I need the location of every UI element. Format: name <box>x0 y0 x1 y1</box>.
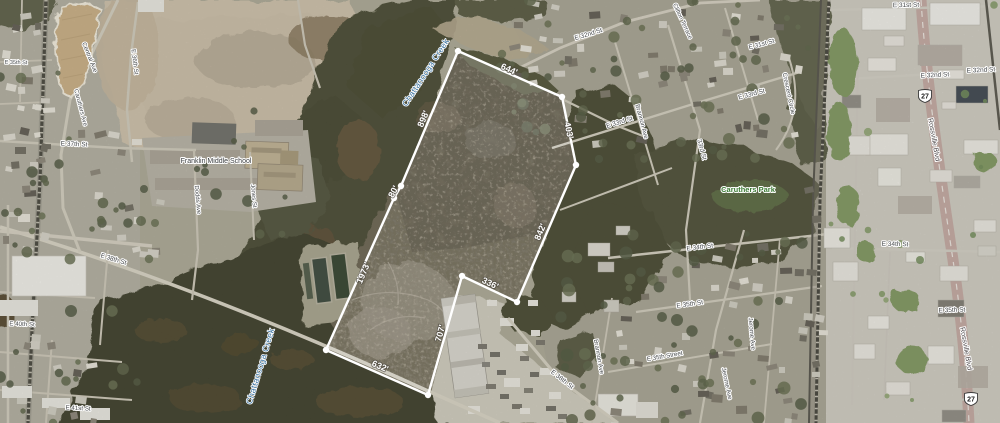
svg-text:E 31st St: E 31st St <box>893 2 920 9</box>
svg-text:E 41st St: E 41st St <box>65 404 91 412</box>
svg-text:Franklin Middle School: Franklin Middle School <box>181 158 252 165</box>
svg-text:E 35th St: E 35th St <box>5 60 28 66</box>
svg-text:E 37th St: E 37th St <box>61 141 88 149</box>
svg-text:Caruthers Park: Caruthers Park <box>721 185 776 194</box>
svg-text:E 35th St: E 35th St <box>938 307 965 315</box>
svg-text:E 34th St: E 34th St <box>882 241 909 248</box>
svg-text:E 40th St: E 40th St <box>9 321 35 329</box>
svg-text:27: 27 <box>967 397 975 404</box>
svg-text:27: 27 <box>921 94 929 101</box>
